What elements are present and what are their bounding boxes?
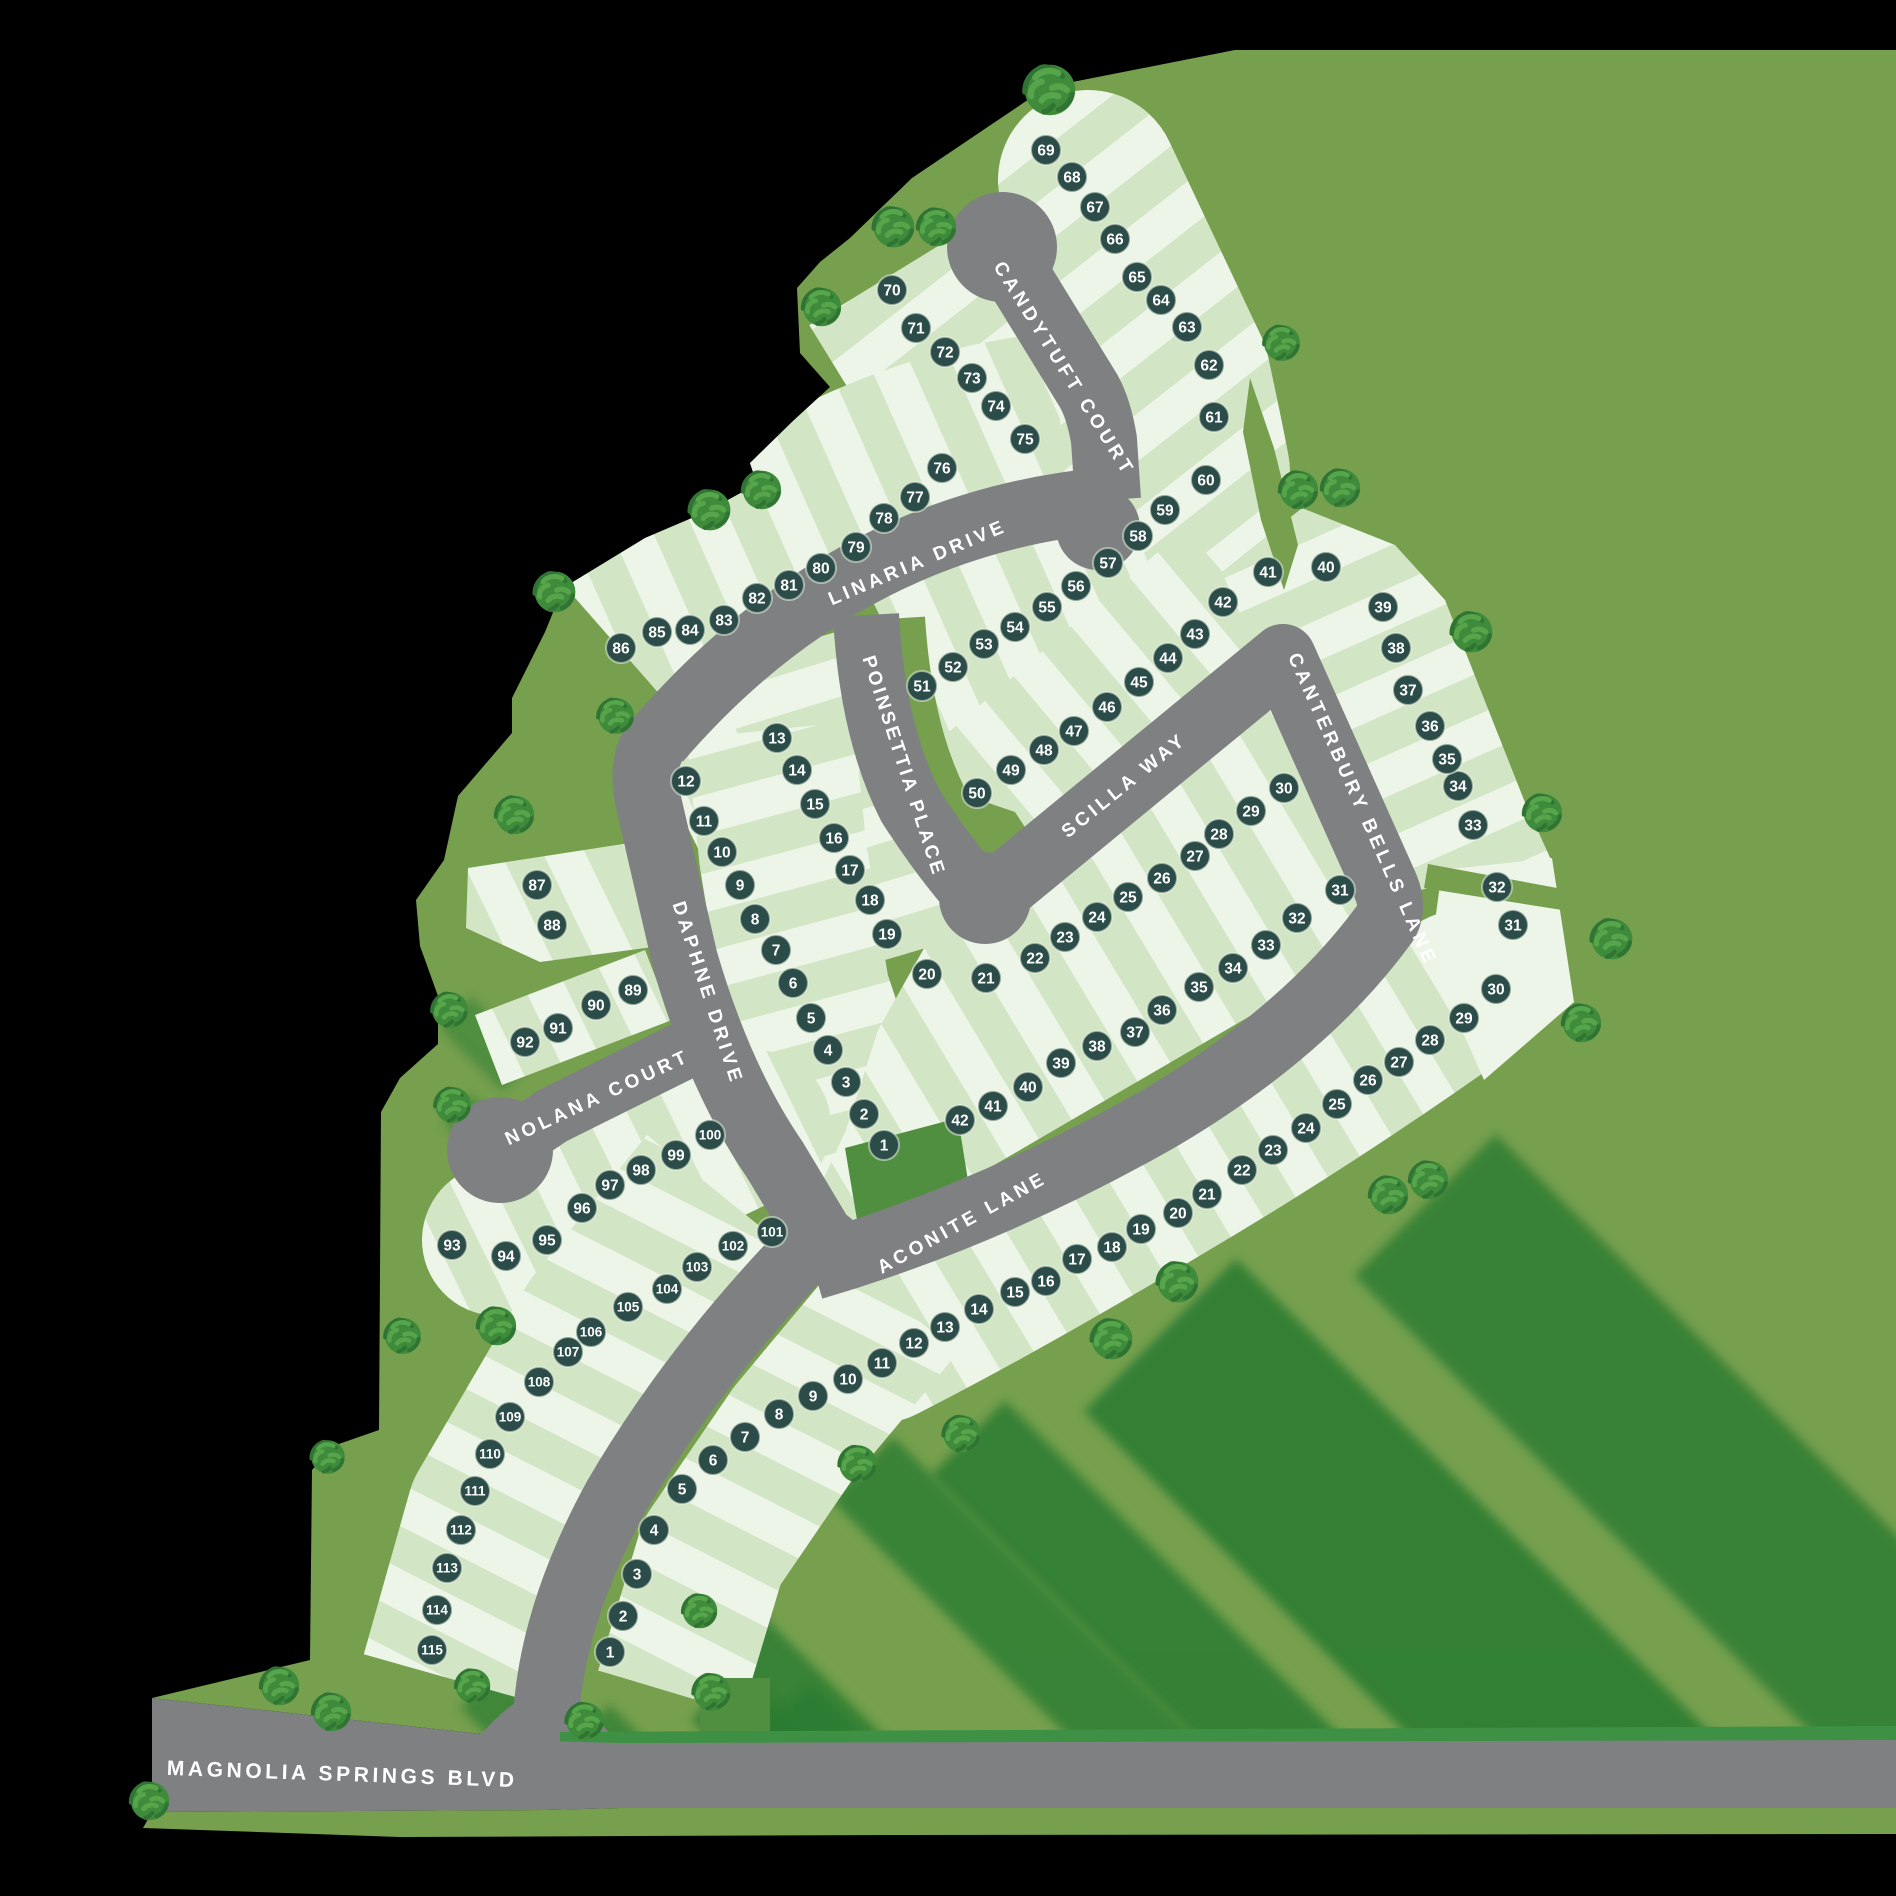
svg-text:3: 3 — [633, 1566, 642, 1583]
svg-text:110: 110 — [479, 1447, 501, 1462]
svg-text:25: 25 — [1328, 1096, 1346, 1113]
svg-text:55: 55 — [1038, 599, 1056, 616]
svg-text:54: 54 — [1006, 619, 1024, 636]
svg-text:2: 2 — [619, 1608, 628, 1625]
svg-text:29: 29 — [1242, 803, 1260, 820]
svg-text:100: 100 — [699, 1128, 722, 1143]
svg-text:81: 81 — [780, 577, 798, 594]
svg-text:5: 5 — [807, 1010, 816, 1027]
svg-text:28: 28 — [1421, 1032, 1439, 1049]
svg-text:11: 11 — [874, 1355, 891, 1372]
svg-text:16: 16 — [1037, 1273, 1055, 1290]
svg-text:31: 31 — [1504, 917, 1522, 934]
svg-text:43: 43 — [1186, 626, 1204, 643]
svg-text:40: 40 — [1019, 1079, 1036, 1096]
svg-text:23: 23 — [1264, 1142, 1282, 1159]
svg-text:92: 92 — [516, 1034, 533, 1051]
svg-text:105: 105 — [617, 1300, 640, 1315]
svg-text:11: 11 — [696, 813, 713, 830]
svg-text:115: 115 — [421, 1643, 443, 1658]
svg-text:95: 95 — [538, 1232, 556, 1249]
svg-text:87: 87 — [528, 877, 545, 894]
svg-text:84: 84 — [681, 622, 699, 639]
svg-text:41: 41 — [1259, 564, 1277, 581]
svg-text:36: 36 — [1153, 1002, 1171, 1019]
svg-text:5: 5 — [678, 1481, 687, 1498]
svg-text:86: 86 — [612, 640, 630, 657]
svg-text:46: 46 — [1098, 699, 1116, 716]
svg-text:79: 79 — [847, 539, 865, 556]
svg-text:80: 80 — [812, 560, 829, 577]
svg-text:20: 20 — [1169, 1205, 1186, 1222]
svg-text:71: 71 — [907, 320, 925, 337]
svg-text:8: 8 — [775, 1406, 784, 1423]
svg-text:39: 39 — [1052, 1055, 1070, 1072]
svg-text:65: 65 — [1128, 269, 1146, 286]
svg-text:31: 31 — [1331, 882, 1349, 899]
svg-text:66: 66 — [1106, 231, 1124, 248]
svg-text:42: 42 — [1214, 594, 1231, 611]
svg-text:2: 2 — [860, 1106, 869, 1123]
svg-text:98: 98 — [632, 1162, 650, 1179]
svg-text:113: 113 — [436, 1561, 458, 1576]
svg-text:30: 30 — [1487, 981, 1504, 998]
svg-text:1: 1 — [606, 1644, 615, 1661]
svg-text:51: 51 — [913, 678, 931, 695]
svg-text:9: 9 — [809, 1388, 818, 1405]
svg-text:52: 52 — [944, 659, 961, 676]
svg-text:27: 27 — [1186, 848, 1203, 865]
svg-text:60: 60 — [1197, 472, 1214, 489]
svg-text:24: 24 — [1297, 1120, 1315, 1137]
svg-text:1: 1 — [880, 1137, 889, 1154]
svg-text:12: 12 — [677, 773, 694, 790]
svg-text:32: 32 — [1488, 879, 1505, 896]
svg-text:3: 3 — [842, 1074, 851, 1091]
svg-text:38: 38 — [1387, 640, 1405, 657]
svg-text:36: 36 — [1421, 718, 1439, 735]
svg-text:37: 37 — [1399, 682, 1416, 699]
svg-text:61: 61 — [1205, 409, 1223, 426]
svg-text:50: 50 — [968, 785, 985, 802]
svg-text:70: 70 — [883, 282, 900, 299]
svg-text:85: 85 — [648, 624, 666, 641]
svg-text:99: 99 — [667, 1147, 685, 1164]
svg-text:6: 6 — [789, 975, 798, 992]
svg-text:68: 68 — [1063, 169, 1081, 186]
svg-text:69: 69 — [1037, 142, 1055, 159]
svg-text:59: 59 — [1156, 502, 1174, 519]
svg-text:23: 23 — [1056, 929, 1074, 946]
svg-text:13: 13 — [936, 1319, 954, 1336]
svg-text:10: 10 — [713, 844, 730, 861]
svg-text:48: 48 — [1035, 742, 1053, 759]
svg-text:15: 15 — [1006, 1284, 1024, 1301]
svg-text:78: 78 — [875, 510, 893, 527]
svg-text:27: 27 — [1390, 1054, 1407, 1071]
svg-text:22: 22 — [1233, 1162, 1250, 1179]
svg-text:7: 7 — [741, 1429, 750, 1446]
svg-text:10: 10 — [839, 1371, 856, 1388]
svg-text:37: 37 — [1126, 1024, 1143, 1041]
svg-text:33: 33 — [1257, 937, 1275, 954]
svg-text:107: 107 — [557, 1345, 580, 1360]
svg-text:21: 21 — [977, 970, 995, 987]
svg-text:83: 83 — [715, 612, 733, 629]
svg-text:19: 19 — [1132, 1221, 1150, 1238]
svg-text:18: 18 — [1103, 1239, 1121, 1256]
svg-text:109: 109 — [499, 1410, 522, 1425]
svg-text:63: 63 — [1178, 319, 1196, 336]
svg-text:82: 82 — [748, 590, 765, 607]
svg-text:74: 74 — [987, 398, 1005, 415]
svg-text:104: 104 — [656, 1282, 679, 1297]
svg-text:9: 9 — [736, 877, 745, 894]
svg-text:45: 45 — [1130, 674, 1148, 691]
svg-text:56: 56 — [1067, 578, 1085, 595]
svg-text:111: 111 — [464, 1484, 486, 1499]
svg-text:29: 29 — [1455, 1010, 1473, 1027]
svg-text:64: 64 — [1152, 292, 1170, 309]
svg-text:97: 97 — [601, 1177, 618, 1194]
svg-text:40: 40 — [1317, 559, 1334, 576]
svg-text:18: 18 — [861, 892, 879, 909]
svg-text:41: 41 — [984, 1098, 1002, 1115]
svg-text:76: 76 — [933, 460, 951, 477]
svg-text:26: 26 — [1359, 1072, 1377, 1089]
svg-text:89: 89 — [624, 982, 642, 999]
svg-text:14: 14 — [788, 762, 806, 779]
svg-text:17: 17 — [1068, 1251, 1085, 1268]
svg-text:17: 17 — [841, 862, 858, 879]
svg-text:67: 67 — [1086, 199, 1103, 216]
svg-text:22: 22 — [1026, 950, 1043, 967]
svg-text:15: 15 — [806, 796, 824, 813]
svg-text:53: 53 — [975, 636, 993, 653]
svg-text:44: 44 — [1159, 650, 1177, 667]
svg-text:33: 33 — [1464, 817, 1482, 834]
svg-text:58: 58 — [1129, 528, 1147, 545]
svg-text:28: 28 — [1210, 826, 1228, 843]
svg-text:93: 93 — [443, 1237, 461, 1254]
svg-text:8: 8 — [751, 911, 760, 928]
svg-text:94: 94 — [497, 1248, 515, 1265]
svg-text:14: 14 — [970, 1301, 988, 1318]
svg-text:4: 4 — [824, 1042, 833, 1059]
svg-text:57: 57 — [1099, 555, 1116, 572]
svg-text:106: 106 — [580, 1325, 603, 1340]
svg-text:114: 114 — [426, 1603, 448, 1618]
svg-text:112: 112 — [450, 1523, 472, 1538]
svg-text:24: 24 — [1088, 909, 1106, 926]
svg-text:101: 101 — [761, 1225, 784, 1240]
svg-text:25: 25 — [1119, 889, 1137, 906]
svg-text:49: 49 — [1002, 762, 1020, 779]
svg-text:77: 77 — [906, 489, 923, 506]
svg-text:13: 13 — [768, 730, 786, 747]
svg-text:88: 88 — [543, 917, 561, 934]
svg-text:4: 4 — [650, 1522, 659, 1539]
svg-text:96: 96 — [573, 1200, 591, 1217]
svg-text:12: 12 — [905, 1335, 922, 1352]
svg-text:90: 90 — [587, 997, 604, 1014]
svg-text:102: 102 — [722, 1239, 745, 1254]
svg-text:62: 62 — [1200, 357, 1217, 374]
svg-text:21: 21 — [1198, 1186, 1216, 1203]
svg-text:38: 38 — [1088, 1038, 1106, 1055]
svg-text:30: 30 — [1275, 780, 1292, 797]
svg-text:42: 42 — [951, 1112, 968, 1129]
svg-text:39: 39 — [1374, 599, 1392, 616]
svg-text:91: 91 — [549, 1020, 567, 1037]
svg-text:108: 108 — [528, 1375, 551, 1390]
svg-text:34: 34 — [1224, 960, 1242, 977]
svg-text:103: 103 — [686, 1260, 709, 1275]
svg-text:72: 72 — [936, 344, 953, 361]
svg-text:20: 20 — [918, 966, 935, 983]
svg-text:26: 26 — [1153, 870, 1171, 887]
svg-text:6: 6 — [709, 1452, 718, 1469]
svg-text:32: 32 — [1288, 910, 1305, 927]
svg-text:73: 73 — [963, 370, 981, 387]
svg-text:7: 7 — [772, 942, 781, 959]
svg-text:35: 35 — [1190, 979, 1208, 996]
svg-text:47: 47 — [1065, 723, 1082, 740]
svg-text:19: 19 — [878, 926, 896, 943]
svg-text:35: 35 — [1438, 751, 1456, 768]
svg-text:75: 75 — [1016, 431, 1034, 448]
svg-text:16: 16 — [825, 830, 843, 847]
svg-text:34: 34 — [1449, 778, 1467, 795]
